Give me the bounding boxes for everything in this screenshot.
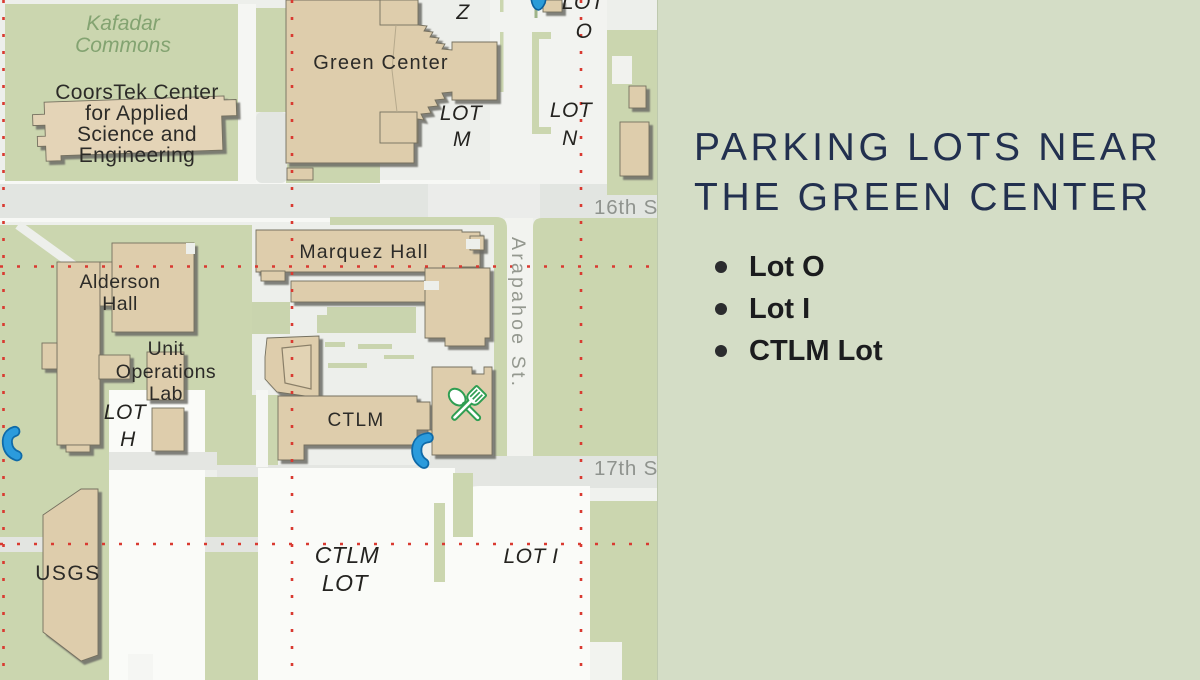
svg-text:Lab: Lab: [149, 383, 183, 405]
svg-text:Z: Z: [455, 1, 470, 24]
svg-text:Green Center: Green Center: [313, 52, 449, 74]
svg-text:Science and: Science and: [77, 123, 197, 146]
svg-text:H: H: [120, 428, 136, 451]
svg-text:Engineering: Engineering: [79, 144, 196, 167]
svg-text:N: N: [562, 127, 578, 150]
svg-text:LOT: LOT: [440, 102, 484, 125]
svg-text:Commons: Commons: [75, 34, 171, 57]
svg-text:Kafadar: Kafadar: [86, 12, 161, 35]
svg-text:for Applied: for Applied: [85, 102, 189, 125]
svg-text:Marquez Hall: Marquez Hall: [299, 241, 428, 263]
svg-text:Arapahoe St.: Arapahoe St.: [507, 237, 529, 389]
svg-text:CoorsTek Center: CoorsTek Center: [55, 81, 219, 104]
svg-text:USGS: USGS: [35, 562, 101, 585]
svg-text:LOT: LOT: [104, 401, 148, 424]
svg-text:CTLM: CTLM: [315, 542, 380, 568]
svg-text:17th St: 17th St: [594, 457, 657, 480]
svg-text:M: M: [453, 128, 471, 151]
svg-text:LOT: LOT: [562, 0, 606, 14]
svg-text:LOT: LOT: [550, 99, 594, 122]
svg-text:Operations: Operations: [116, 361, 216, 383]
svg-text:Alderson: Alderson: [80, 271, 161, 293]
svg-text:LOT I: LOT I: [503, 545, 558, 568]
svg-text:CTLM: CTLM: [328, 410, 385, 431]
svg-text:O: O: [576, 20, 593, 43]
svg-text:LOT: LOT: [322, 570, 370, 596]
svg-text:Hall: Hall: [102, 293, 138, 315]
svg-text:16th St: 16th St: [594, 196, 657, 219]
svg-text:Unit: Unit: [148, 338, 185, 360]
